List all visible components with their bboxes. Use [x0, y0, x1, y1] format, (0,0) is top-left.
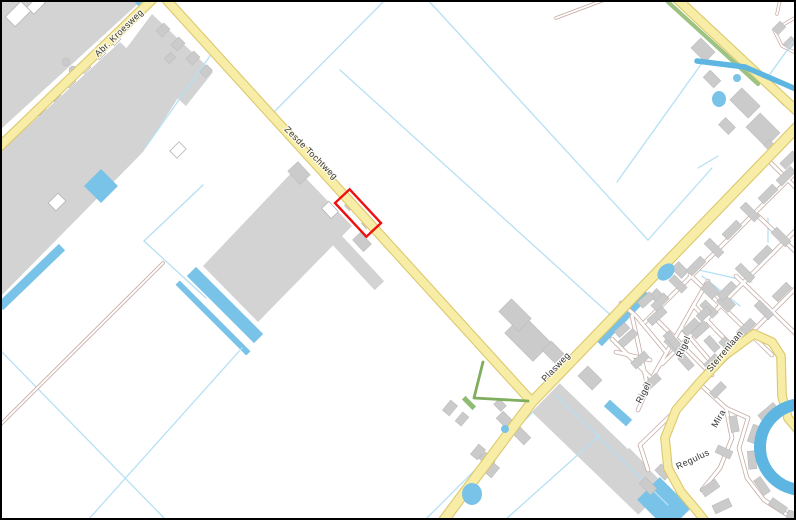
- map-viewport[interactable]: Abr. KroeswegZesde TochtwegPlaswegSterre…: [0, 0, 796, 520]
- map-canvas[interactable]: Abr. KroeswegZesde TochtwegPlaswegSterre…: [0, 0, 796, 520]
